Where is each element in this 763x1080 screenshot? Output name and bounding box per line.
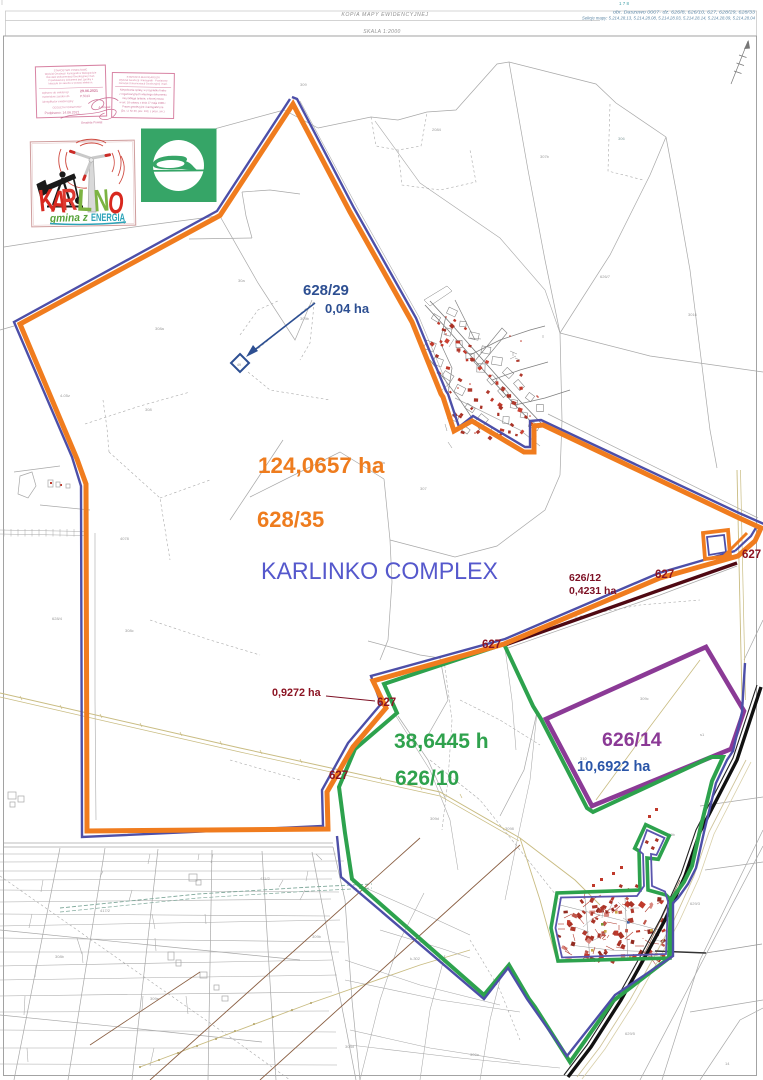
svg-text:626/7: 626/7 (600, 274, 611, 279)
svg-text:SKALA 1:2000: SKALA 1:2000 (363, 29, 400, 35)
svg-text:308: 308 (145, 407, 152, 412)
svg-text:A.Nowak: A.Nowak (97, 105, 111, 109)
svg-text:0,4231 ha: 0,4231 ha (569, 585, 616, 597)
svg-text:309d: 309d (430, 816, 439, 821)
svg-text:obr. Daszewo 0007- dz. 626/8,: obr. Daszewo 0007- dz. 626/8, 626/10, 62… (613, 10, 756, 15)
svg-text:309: 309 (300, 82, 307, 87)
svg-text:307b: 307b (540, 154, 550, 159)
svg-text:4078: 4078 (120, 536, 130, 541)
svg-text:628/35: 628/35 (257, 507, 324, 532)
svg-text:626/14: 626/14 (602, 729, 662, 751)
svg-text:627: 627 (655, 569, 674, 581)
svg-text:309c: 309c (640, 696, 649, 701)
svg-text:411/2: 411/2 (260, 876, 270, 881)
svg-text:306: 306 (618, 136, 625, 141)
svg-text:Sekcje mapy: 5.214.28.13, 5.21: Sekcje mapy: 5.214.28.13, 5.214.28.08, 5… (582, 16, 755, 21)
svg-text:nie podlega oplacie, o ktorej: nie podlega oplacie, o ktorej mowa (122, 96, 164, 101)
svg-text:3016: 3016 (688, 312, 698, 317)
svg-text:KOPIA MAPY EWIDENCYJNEJ: KOPIA MAPY EWIDENCYJNEJ (341, 12, 428, 18)
svg-text:308d: 308d (345, 1044, 354, 1049)
svg-text:KARLINKO COMPLEX: KARLINKO COMPLEX (261, 558, 498, 585)
svg-text:629/5: 629/5 (625, 1031, 636, 1036)
svg-text:1 7 8: 1 7 8 (619, 1, 630, 6)
svg-text:308b: 308b (55, 954, 65, 959)
svg-text:626/12: 626/12 (569, 572, 601, 584)
svg-text:w art. 18 ustawy z dnia 17 maj: w art. 18 ustawy z dnia 17 maja 1989 r. (120, 100, 167, 105)
svg-text:29.06.2021: 29.06.2021 (80, 89, 98, 93)
svg-text:0,9272 ha: 0,9272 ha (272, 687, 322, 699)
svg-text:14: 14 (725, 1061, 730, 1066)
svg-text:0,04 ha: 0,04 ha (325, 301, 370, 316)
svg-text:309b: 309b (312, 934, 322, 939)
svg-text:(Dz. U. Nr 30, poz. 163, z poz: (Dz. U. Nr 30, poz. 163, z pozn. zm.) (121, 109, 165, 114)
svg-text:30a: 30a (238, 278, 245, 283)
svg-text:10,6922 ha: 10,6922 ha (577, 759, 651, 775)
svg-text:identyfikator ewidencyjny: identyfikator ewidencyjny (42, 99, 74, 104)
svg-text:627: 627 (329, 770, 348, 782)
svg-text:307: 307 (420, 486, 427, 491)
svg-text:4-05z: 4-05z (60, 393, 70, 398)
svg-text:Prawo geodezyjne i kartografic: Prawo geodezyjne i kartograficzne (122, 104, 164, 109)
svg-text:309b: 309b (300, 316, 310, 321)
svg-text:k-302: k-302 (410, 956, 421, 961)
svg-text:GEODETA POWIATOWY: GEODETA POWIATOWY (52, 105, 82, 110)
svg-text:309e: 309e (150, 996, 160, 1001)
svg-text:2084: 2084 (432, 127, 442, 132)
svg-text:308a: 308a (155, 326, 165, 331)
svg-text:308c: 308c (125, 628, 134, 633)
svg-text:Niepobranie oplaty, w przypadk: Niepobranie oplaty, w przypadku braku (120, 88, 167, 93)
svg-text:627: 627 (742, 549, 761, 561)
svg-text:417/2: 417/2 (100, 908, 111, 913)
svg-text:z organizacyjnych wlasnego dok: z organizacyjnych wlasnego dokumentu (119, 92, 167, 97)
svg-text:124,0657 ha: 124,0657 ha (258, 453, 385, 478)
svg-text:gmina z: gmina z (49, 212, 89, 225)
svg-text:628/4: 628/4 (52, 616, 63, 621)
svg-text:626/10: 626/10 (395, 767, 459, 790)
svg-text:49: 49 (237, 363, 241, 367)
svg-text:627: 627 (482, 639, 501, 651)
svg-text:P.5533: P.5533 (80, 94, 90, 98)
svg-text:Geodeta Powiat.: Geodeta Powiat. (81, 120, 103, 125)
svg-text:38,6445 h: 38,6445 h (394, 730, 489, 753)
svg-text:628/29: 628/29 (303, 282, 349, 299)
svg-text:627: 627 (377, 697, 396, 709)
svg-text:629/3: 629/3 (690, 901, 701, 906)
svg-text:materialow zasobu dn.: materialow zasobu dn. (42, 94, 70, 99)
